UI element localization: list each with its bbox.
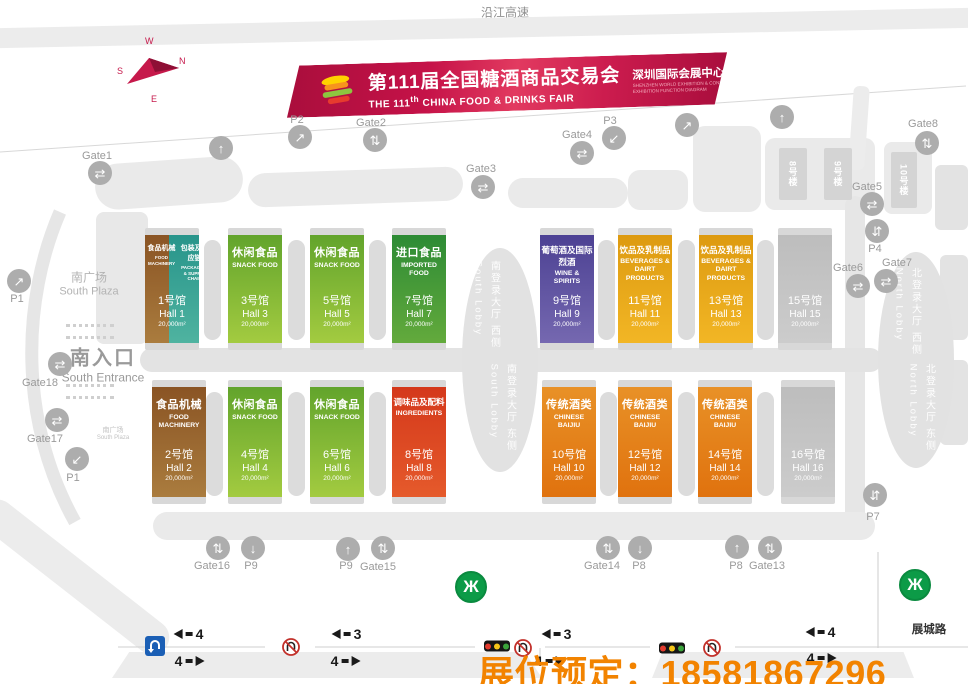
bottom-road-line xyxy=(0,0,968,684)
venue-function-diagram: 沿江高速 South Lobby 南登录大厅 西侧 South Lobby 南登… xyxy=(0,0,968,684)
lane-arrow-left: 3 xyxy=(327,626,362,642)
left-arrow-icon xyxy=(801,627,815,637)
no-u-turn-sign-icon xyxy=(282,638,300,656)
left-arrow-icon xyxy=(537,629,551,639)
lane-arrow-left: 3 xyxy=(537,626,572,642)
right-arrow-icon xyxy=(195,656,209,666)
lane-arrow-left: 4 xyxy=(801,624,836,640)
booking-phone-overlay: 展位预定：18581867296 xyxy=(478,645,886,684)
u-turn-sign-icon xyxy=(145,636,165,656)
road-label: 展城路 xyxy=(912,621,947,637)
right-arrow-icon xyxy=(351,656,365,666)
lane-arrow-right: 4 xyxy=(175,653,210,669)
left-arrow-icon xyxy=(169,629,183,639)
lane-arrow-left: 4 xyxy=(169,626,204,642)
left-arrow-icon xyxy=(327,629,341,639)
lane-arrow-right: 4 xyxy=(331,653,366,669)
